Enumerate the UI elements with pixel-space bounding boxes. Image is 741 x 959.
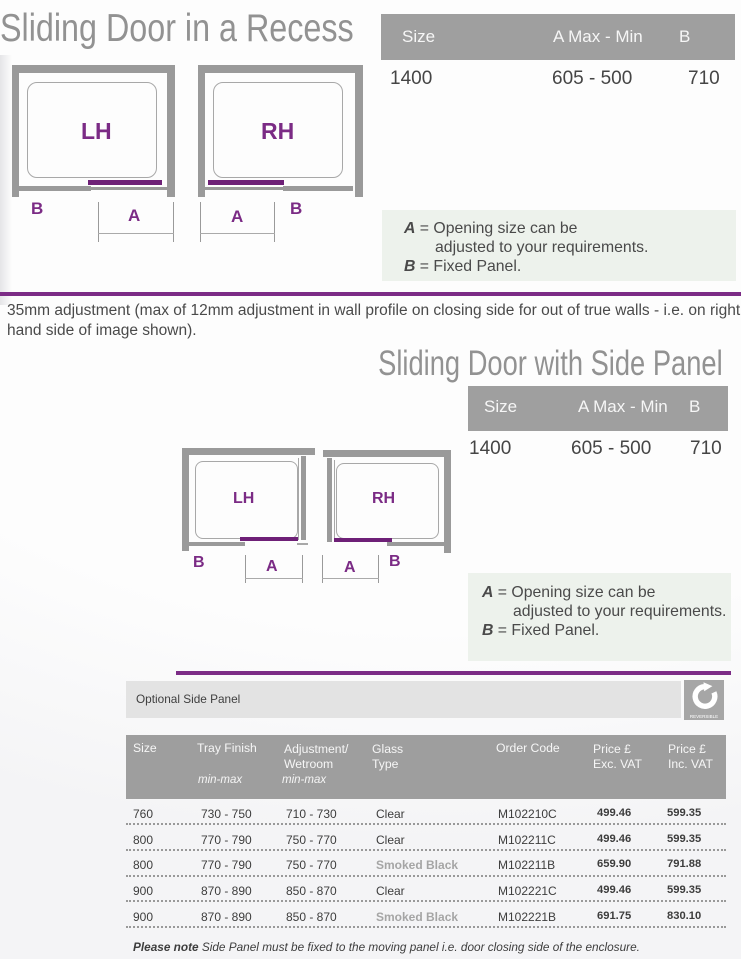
svg-text:REVERSIBLE: REVERSIBLE: [690, 714, 718, 719]
